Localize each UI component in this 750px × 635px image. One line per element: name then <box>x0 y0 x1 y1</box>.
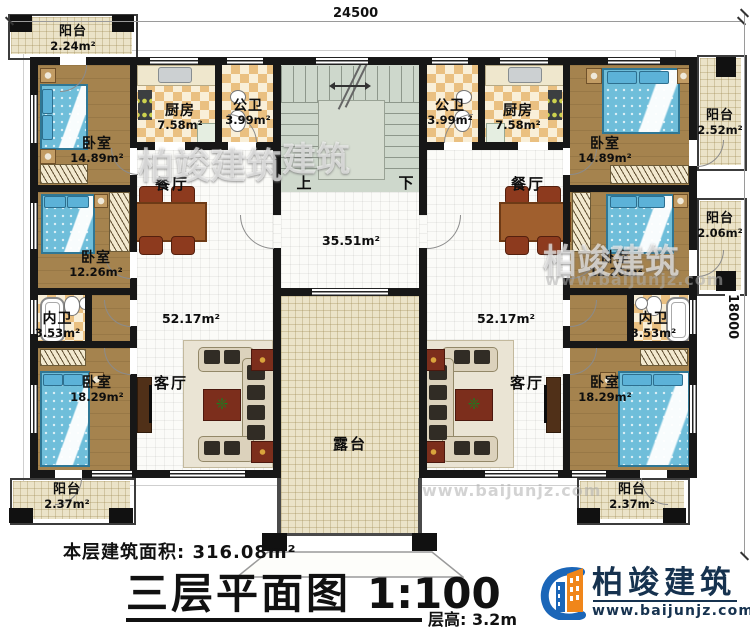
sofa-cushion <box>247 425 265 440</box>
label-bedroom3-left: 卧室18.29m² <box>58 375 136 404</box>
sofa-cushion <box>204 441 220 455</box>
label-stair-down: 下 <box>395 172 419 193</box>
sofa-cushion <box>204 350 220 364</box>
wardrobe <box>640 349 688 366</box>
label-dining-right: 餐厅 <box>494 173 562 194</box>
hall-opening-left <box>273 215 281 248</box>
label-living-left: 客厅 <box>140 372 202 393</box>
label-hall-area: 35.51m² <box>316 233 386 248</box>
label-balcony-right-1: 阳台2.52m² <box>694 108 746 137</box>
pillow <box>607 71 637 84</box>
coffee-table: ❈ <box>203 389 241 421</box>
window <box>500 57 548 65</box>
watermark-brand-partial: 建筑 <box>282 132 350 181</box>
label-living-right-area: 52.17m² <box>468 311 544 326</box>
pillow <box>42 115 53 140</box>
window <box>608 57 660 65</box>
sofa-cushion <box>429 425 447 440</box>
window <box>30 385 38 433</box>
sofa-cushion <box>429 385 447 400</box>
window <box>92 470 132 478</box>
label-living-right: 客厅 <box>496 372 558 393</box>
label-bedroom1-right: 卧室14.89m² <box>567 136 643 165</box>
column <box>577 508 600 523</box>
floor-area-text: 本层建筑面积: 316.08m² <box>63 538 297 564</box>
sofa-cushion <box>454 441 470 455</box>
pillow <box>653 374 683 386</box>
company-logo-url: www.baijunjz.com <box>592 603 750 619</box>
sofa-cushion <box>224 441 240 455</box>
dimension-height: 18000 <box>725 292 740 341</box>
column <box>412 533 437 551</box>
dining-chair <box>505 236 529 255</box>
window <box>227 57 263 65</box>
floor-height-text: 层高: 3.2m <box>428 606 517 630</box>
sink <box>635 297 648 310</box>
window <box>316 57 368 65</box>
dimension-line-top <box>8 21 743 22</box>
column <box>109 508 133 523</box>
wardrobe <box>40 349 86 366</box>
sofa-cushion <box>247 405 265 420</box>
nightstand <box>40 149 56 164</box>
watermark-url: www.baijunjz.com <box>545 270 724 289</box>
label-balcony-bottom-left: 阳台2.37m² <box>34 482 100 511</box>
pillow <box>42 89 53 114</box>
label-bedroom1-left: 卧室14.89m² <box>59 136 135 165</box>
sliding-door <box>170 470 245 478</box>
door-opening <box>689 140 697 166</box>
pillow <box>44 196 66 208</box>
nightstand <box>673 194 688 208</box>
logo-divider <box>593 600 737 602</box>
pillow <box>67 196 89 208</box>
dining-chair <box>171 236 195 255</box>
company-logo-icon <box>537 562 591 620</box>
title-text: 三层平面图 <box>126 572 351 616</box>
window <box>432 57 468 65</box>
label-terrace: 露台 <box>320 433 380 454</box>
column <box>716 57 736 77</box>
sofa-cushion <box>454 350 470 364</box>
terrace-rail <box>277 478 281 536</box>
stair-arrow-right <box>365 82 371 90</box>
pillow <box>639 71 669 84</box>
wardrobe <box>40 164 88 184</box>
label-balcony-top-left: 阳台2.24m² <box>40 24 106 53</box>
kitchen-sink <box>158 67 192 83</box>
column <box>9 508 33 523</box>
door-opening <box>640 470 667 478</box>
door-opening <box>60 57 86 65</box>
label-bath-left: 公卫3.99m² <box>221 98 275 127</box>
label-ensuite-left: 内卫3.53m² <box>30 311 85 340</box>
pillow <box>610 196 637 208</box>
dimension-width: 24500 <box>330 6 381 21</box>
stair-arrow <box>334 85 366 87</box>
sofa-cushion <box>429 405 447 420</box>
terrace-floor <box>281 296 419 536</box>
dining-chair <box>139 236 163 255</box>
sofa-cushion <box>224 350 240 364</box>
label-ensuite-right: 内卫3.53m² <box>626 311 681 340</box>
company-logo-name: 柏竣建筑 <box>592 567 736 599</box>
terrace-rail <box>279 533 420 536</box>
label-bedroom2-left: 卧室12.26m² <box>57 250 135 279</box>
sliding-door <box>485 470 558 478</box>
label-balcony-right-2: 阳台2.06m² <box>694 211 746 240</box>
kitchen-sink <box>508 67 542 83</box>
title-underline <box>126 618 422 622</box>
sofa-cushion <box>474 350 490 364</box>
window <box>689 385 697 433</box>
window <box>689 300 697 334</box>
nightstand <box>94 194 108 208</box>
nightstand <box>586 68 602 84</box>
hall-opening-right <box>419 215 427 248</box>
floor-plan: ❈ ❈ <box>0 0 750 635</box>
window <box>30 95 38 143</box>
label-kitchen-left: 厨房7.58m² <box>145 103 215 132</box>
label-bath-right: 公卫3.99m² <box>423 98 477 127</box>
label-bedroom3-right: 卧室18.29m² <box>566 375 644 404</box>
window <box>30 203 38 249</box>
coffee-table: ❈ <box>455 389 493 421</box>
stair-treads <box>383 102 419 178</box>
dimension-line-right <box>744 14 745 557</box>
watermark-brand: 柏竣建筑 <box>138 137 282 189</box>
end-table <box>251 349 274 371</box>
column <box>112 15 134 32</box>
nightstand <box>40 68 56 83</box>
sliding-door <box>312 288 388 296</box>
label-kitchen-right: 厨房7.58m² <box>483 103 553 132</box>
sofa-cushion <box>474 441 490 455</box>
watermark-url: www.baijunjz.com <box>422 481 601 500</box>
window <box>572 470 606 478</box>
window <box>150 57 198 65</box>
door-opening <box>55 470 82 478</box>
end-table <box>251 441 274 463</box>
column <box>663 508 686 523</box>
label-balcony-bottom-right: 阳台2.37m² <box>599 482 665 511</box>
label-living-left-area: 52.17m² <box>153 311 229 326</box>
pillow <box>638 196 665 208</box>
wardrobe <box>109 192 130 252</box>
stair-arrow-left <box>329 82 335 90</box>
sofa-cushion <box>247 385 265 400</box>
wardrobe <box>610 165 689 184</box>
